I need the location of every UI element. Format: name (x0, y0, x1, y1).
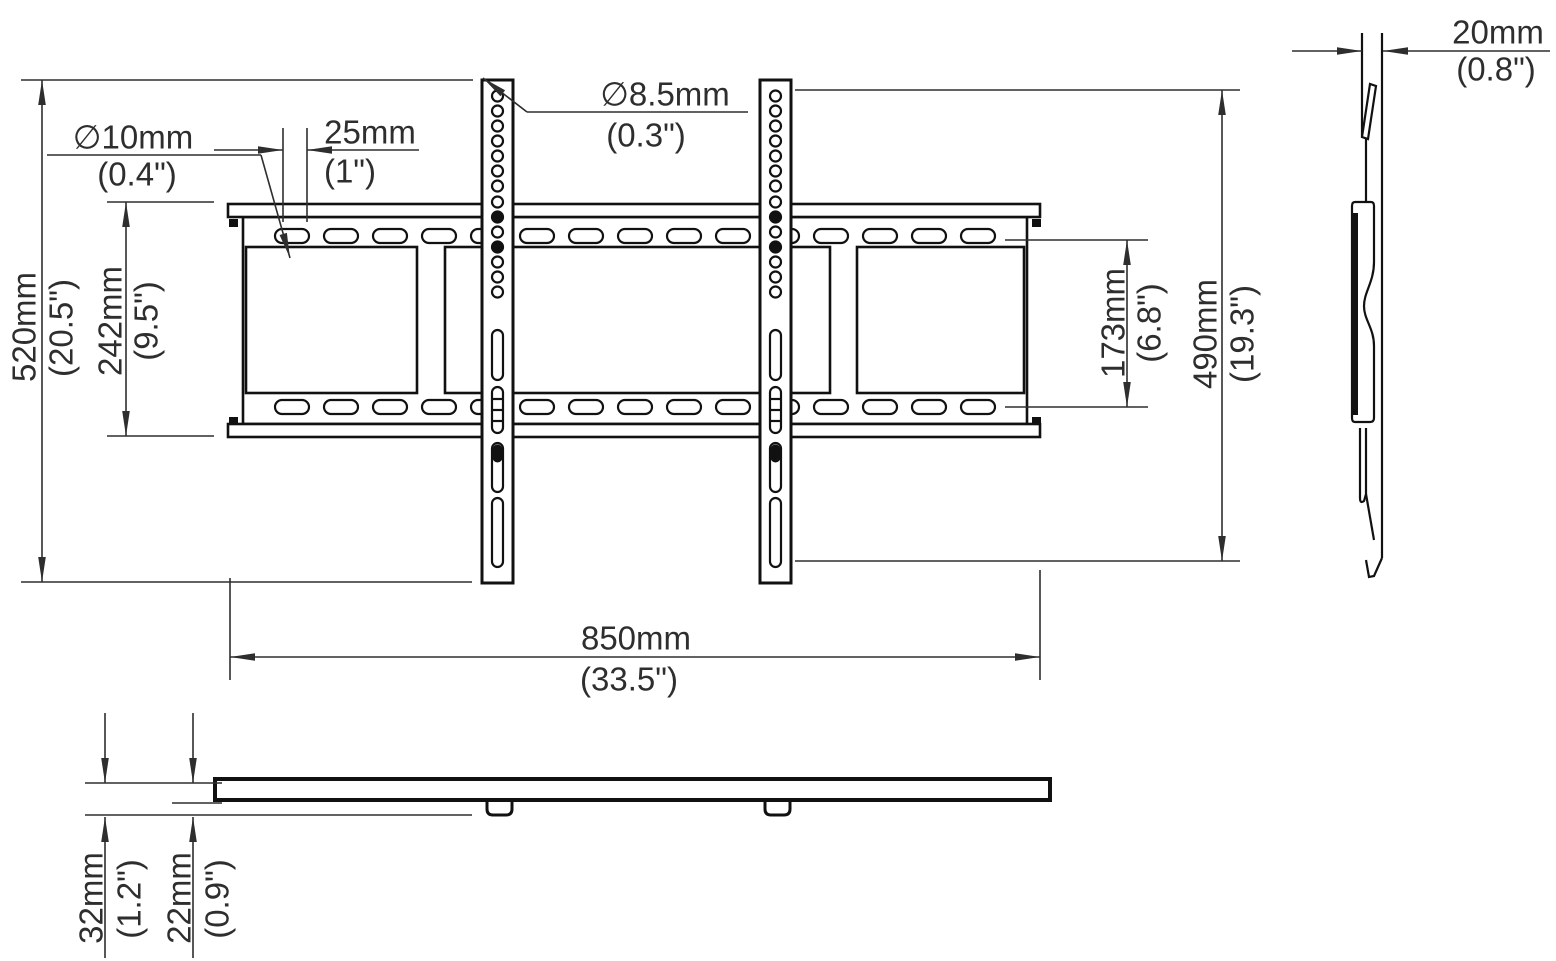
bottom-rail-profile (215, 779, 1050, 800)
wall-rail (228, 204, 1041, 437)
top-slot-row (275, 229, 995, 243)
dim-520mm-value: 520mm (6, 272, 43, 382)
mounting-slot (716, 400, 750, 414)
rail-corner-mark (229, 417, 238, 425)
dim-d10-inches: (0.4") (97, 156, 177, 193)
rail-bottom-flange (228, 424, 1040, 437)
dim-242mm: 242mm (9.5") (92, 202, 215, 436)
dim-173mm-inches: (6.8") (1131, 283, 1168, 363)
dim-22mm-value: 22mm (161, 852, 198, 944)
dim-173mm-value: 173mm (1095, 268, 1132, 378)
mounting-slot (520, 229, 554, 243)
rail-top-flange (228, 204, 1040, 217)
mounting-slot (520, 400, 554, 414)
mounting-slot (324, 400, 358, 414)
dim-bracket-hole-diameter: ∅8.5mm (0.3") (483, 76, 748, 154)
dim-850mm: 850mm (33.5") (230, 570, 1040, 698)
dim-520mm-inches: (20.5") (43, 279, 80, 377)
mounting-slot (569, 400, 603, 414)
dim-22mm-inches: (0.9") (199, 859, 236, 939)
dim-20mm: 20mm (0.8") (1292, 14, 1550, 88)
mounting-slot (912, 229, 946, 243)
technical-drawing-page: 520mm (20.5") 242mm (9.5") ∅10mm (0.4") … (0, 0, 1556, 961)
mounting-slot (961, 400, 995, 414)
mounting-slot (422, 229, 456, 243)
mounting-slot (814, 229, 848, 243)
mounting-slot (569, 229, 603, 243)
wall-mount-drawing: 520mm (20.5") 242mm (9.5") ∅10mm (0.4") … (0, 0, 1556, 961)
dim-490mm-inches: (19.3") (1224, 285, 1261, 383)
dim-25mm-value: 25mm (324, 114, 416, 151)
right-vesa-bracket (760, 80, 791, 583)
dim-25mm-inches: (1") (324, 153, 376, 190)
mounting-slot (912, 400, 946, 414)
mounting-slot (275, 400, 309, 414)
mounting-slot (716, 229, 750, 243)
side-top-flange (1362, 84, 1376, 139)
front-view: 520mm (20.5") 242mm (9.5") ∅10mm (0.4") … (6, 76, 1261, 698)
mounting-slot (814, 400, 848, 414)
mounting-slot (863, 400, 897, 414)
dim-242mm-value: 242mm (92, 266, 129, 376)
dim-242mm-inches: (9.5") (128, 281, 165, 361)
left-vesa-bracket (482, 80, 513, 583)
dim-850mm-inches: (33.5") (580, 661, 678, 698)
mounting-slot (863, 229, 897, 243)
mounting-slot (667, 400, 701, 414)
mounting-slot (667, 229, 701, 243)
rail-corner-mark (1032, 417, 1041, 425)
mounting-slot (324, 229, 358, 243)
side-profile (1352, 33, 1382, 577)
dim-490mm-value: 490mm (1187, 279, 1224, 389)
dim-32mm-value: 32mm (73, 852, 110, 944)
mounting-slot (618, 229, 652, 243)
dim-32mm: 32mm (1.2") (73, 713, 148, 958)
bottom-slot-row (275, 400, 995, 414)
mounting-slot (373, 400, 407, 414)
side-bottom-flange (1360, 428, 1366, 502)
dim-22mm: 22mm (0.9") (161, 713, 236, 958)
mounting-slot (961, 229, 995, 243)
side-view: 20mm (0.8") (1292, 14, 1550, 578)
dim-d10-value: ∅10mm (73, 119, 193, 156)
dim-32mm-inches: (1.2") (111, 859, 148, 939)
side-bottom-tip (1366, 558, 1382, 577)
mounting-slot (373, 229, 407, 243)
dim-20mm-value: 20mm (1452, 14, 1544, 51)
dim-173mm: 173mm (6.8") (1005, 240, 1168, 407)
side-bracket-face (1353, 213, 1359, 415)
rail-corner-mark (229, 219, 238, 227)
rail-corner-mark (1032, 219, 1041, 227)
dim-20mm-inches: (0.8") (1456, 51, 1536, 88)
bottom-view: 32mm (1.2") 22mm (0.9") (73, 713, 1051, 958)
dim-d85-value: ∅8.5mm (600, 76, 730, 113)
dim-850mm-value: 850mm (581, 620, 691, 657)
mounting-slot (275, 229, 309, 243)
mounting-slot (422, 400, 456, 414)
dim-d85-inches: (0.3") (606, 117, 686, 154)
mounting-slot (618, 400, 652, 414)
